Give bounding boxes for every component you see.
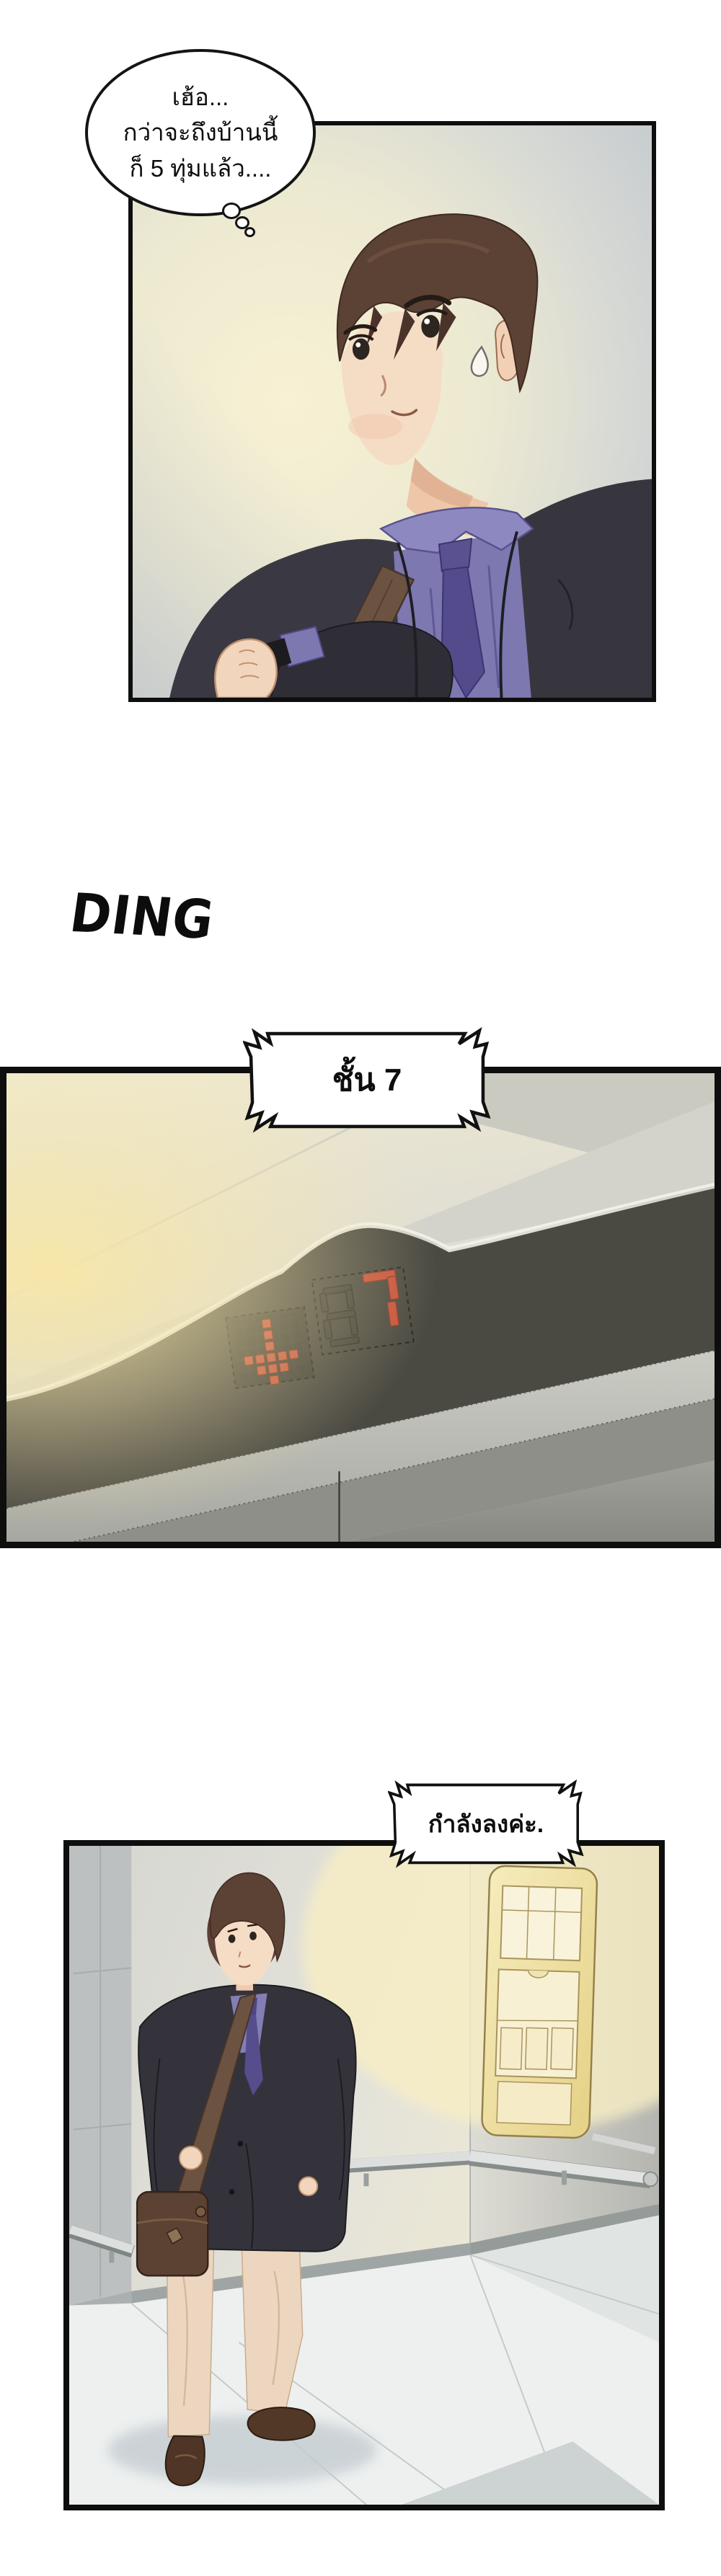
caption-box-floor-7: ชั้น 7 (243, 1026, 491, 1133)
thought-bubble-tail (244, 227, 255, 237)
comic-page: เฮ้อ... กว่าจะถึงบ้านนี้ ก็ 5 ทุ่มแล้ว..… (0, 0, 721, 2576)
man-shadow (108, 2416, 377, 2484)
panel-2-art (6, 1073, 715, 1542)
caption-box-going-down: กำลังลงค่ะ. (388, 1779, 584, 1868)
right-eye (421, 315, 440, 338)
panel-3-elevator-interior (63, 1840, 665, 2510)
jacket-button (229, 2189, 235, 2195)
panel-buttons (526, 2028, 548, 2069)
panel-2-floor-display (0, 1067, 721, 1548)
handrail-end-cap (643, 2172, 658, 2187)
thought-bubble-text: เฮ้อ... กว่าจะถึงบ้านนี้ ก็ 5 ทุ่มแล้ว..… (112, 75, 290, 191)
bag-ring (196, 2207, 206, 2217)
warm-light-glow (6, 1073, 715, 1542)
left-eye (353, 339, 370, 360)
right-shoe (248, 2407, 315, 2440)
panel-buttons (500, 2028, 522, 2069)
left-shoe (166, 2436, 205, 2486)
right-hand (299, 2177, 318, 2195)
left-eye-highlight (355, 342, 360, 347)
right-eye-highlight (424, 319, 430, 324)
sfx-ding: DING (66, 882, 218, 951)
eye-small (229, 1935, 236, 1943)
thought-line-2: กว่าจะถึงบ้านนี้ (123, 119, 278, 146)
eye-small (249, 1932, 257, 1940)
thought-line-1: เฮ้อ... (172, 84, 229, 110)
left-hand-grip (180, 2146, 202, 2169)
panel-display-window (500, 1886, 582, 1960)
caption-text: กำลังลงค่ะ. (388, 1779, 584, 1871)
jacket-button (237, 2141, 243, 2146)
elevator-control-panel (482, 1865, 598, 2138)
thought-line-3: ก็ 5 ทุ่มแล้ว.... (130, 155, 272, 182)
panel-buttons (551, 2028, 573, 2069)
thought-bubble: เฮ้อ... กว่าจะถึงบ้านนี้ ก็ 5 ทุ่มแล้ว..… (85, 49, 316, 216)
panel-lower-slot (497, 2082, 572, 2125)
panel-3-art (69, 1846, 659, 2505)
cheek-shade (348, 414, 402, 439)
caption-text: ชั้น 7 (243, 1026, 491, 1133)
